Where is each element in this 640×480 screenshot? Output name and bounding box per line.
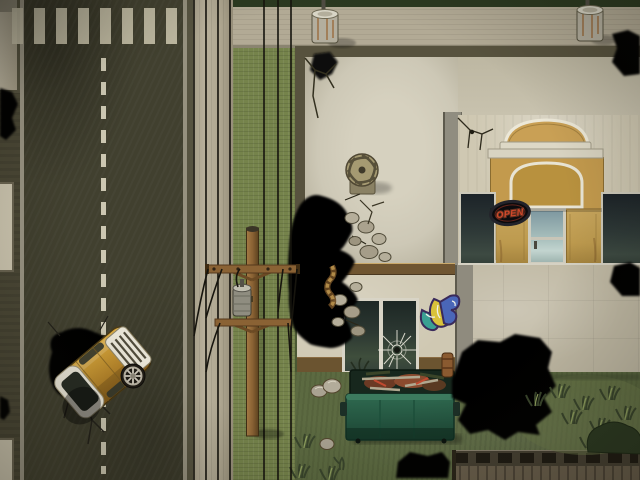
corner-sinkhole — [612, 30, 640, 76]
window-plants — [351, 358, 369, 370]
roof-vent — [342, 150, 392, 194]
utility-pole — [194, 226, 300, 439]
rocks — [311, 379, 341, 450]
bollard-right — [577, 0, 617, 45]
dumpster[interactable] — [340, 370, 462, 444]
van-wheel — [121, 364, 145, 388]
graffiti-tag — [421, 295, 459, 330]
facade-cracks — [360, 200, 384, 224]
arched-sign — [488, 120, 603, 262]
scene-overlay: OPEN OPEN — [0, 0, 640, 480]
open-sign: OPEN OPEN — [489, 199, 531, 227]
power-lines — [194, 0, 291, 480]
roof-cracks-left — [305, 52, 338, 118]
bullet-hole — [378, 330, 417, 369]
pavement-sinkhole — [610, 262, 640, 296]
bollard-left — [312, 0, 356, 48]
drain-pipe — [442, 353, 453, 377]
roof-crack-right — [458, 118, 493, 150]
crosswalk — [12, 8, 177, 44]
edge-sinkholes — [0, 88, 18, 420]
game-viewport[interactable]: OPEN OPEN — [0, 0, 640, 480]
